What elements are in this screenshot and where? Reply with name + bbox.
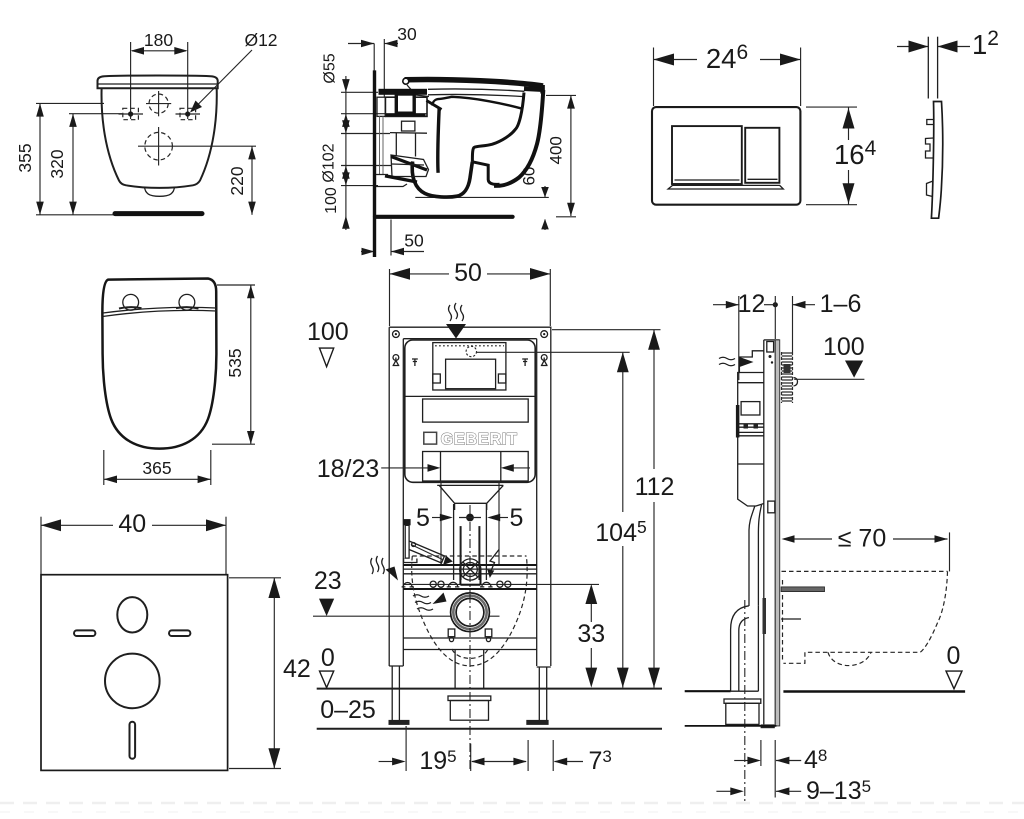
svg-text:18/23: 18/23 <box>317 455 380 483</box>
svg-text:5: 5 <box>416 504 430 532</box>
svg-text:Ø12: Ø12 <box>244 30 277 50</box>
svg-text:355: 355 <box>15 143 35 172</box>
svg-text:50: 50 <box>454 259 482 287</box>
svg-text:0–25: 0–25 <box>320 696 376 724</box>
svg-text:100: 100 <box>323 187 340 214</box>
svg-text:100: 100 <box>823 333 865 361</box>
svg-text:320: 320 <box>47 149 67 178</box>
svg-text:42: 42 <box>283 655 311 683</box>
svg-text:180: 180 <box>144 30 173 50</box>
svg-text:5: 5 <box>510 504 524 532</box>
svg-text:GEBERIT: GEBERIT <box>441 431 518 449</box>
svg-text:535: 535 <box>225 348 245 377</box>
svg-text:33: 33 <box>577 620 605 648</box>
svg-text:0: 0 <box>946 642 960 670</box>
svg-text:50: 50 <box>404 231 424 251</box>
svg-text:112: 112 <box>635 473 675 501</box>
svg-text:40: 40 <box>118 510 146 538</box>
svg-text:23: 23 <box>314 567 342 595</box>
svg-text:0: 0 <box>321 644 335 672</box>
svg-text:400: 400 <box>547 136 566 164</box>
svg-text:100: 100 <box>307 318 349 346</box>
svg-text:Ø55: Ø55 <box>322 53 339 83</box>
svg-text:220: 220 <box>227 166 247 195</box>
svg-text:Ø102: Ø102 <box>321 143 338 182</box>
svg-text:1–6: 1–6 <box>820 290 862 318</box>
svg-text:30: 30 <box>397 24 417 44</box>
svg-text:≤ 70: ≤ 70 <box>838 525 886 553</box>
svg-text:9–135: 9–135 <box>806 777 871 805</box>
svg-text:12: 12 <box>738 290 766 318</box>
svg-text:365: 365 <box>142 458 171 478</box>
